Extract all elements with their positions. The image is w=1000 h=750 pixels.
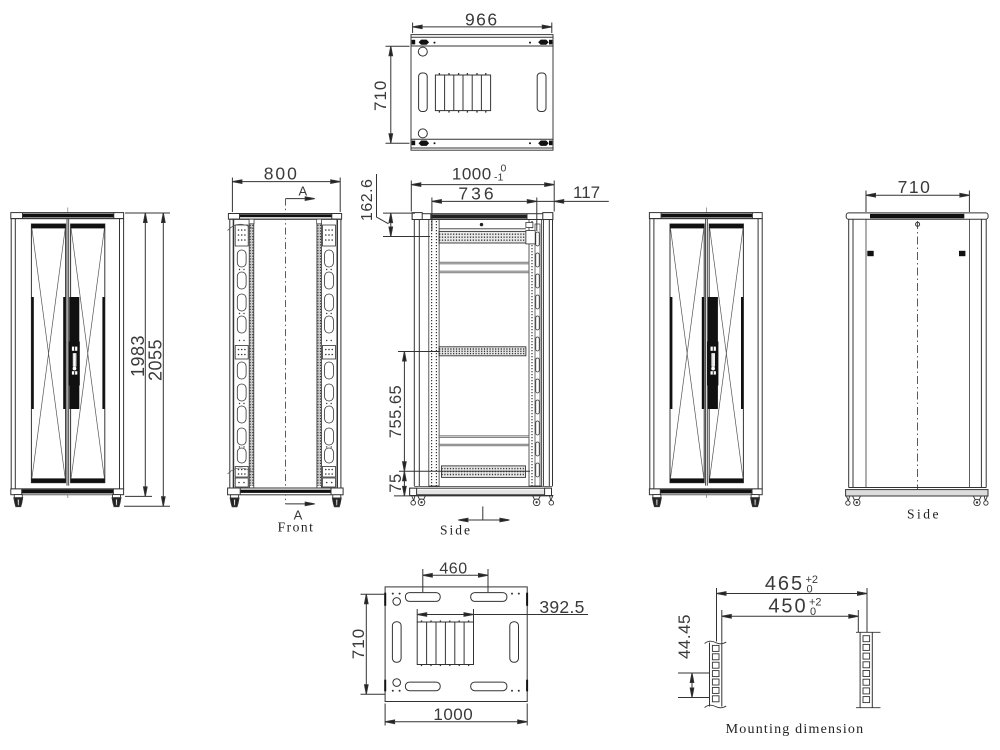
svg-text:75: 75 xyxy=(387,473,405,492)
svg-text:710: 710 xyxy=(898,177,932,197)
svg-text:1000: 1000 xyxy=(452,165,492,184)
svg-text:450: 450 xyxy=(768,596,807,618)
svg-text:392.5: 392.5 xyxy=(539,597,584,617)
svg-text:0: 0 xyxy=(807,584,813,596)
svg-text:1000: 1000 xyxy=(433,705,473,724)
svg-text:Side: Side xyxy=(907,507,941,522)
svg-text:A: A xyxy=(299,184,308,199)
svg-text:Mounting dimension: Mounting dimension xyxy=(726,722,865,737)
svg-text:736: 736 xyxy=(458,183,496,203)
svg-text:44.45: 44.45 xyxy=(675,614,694,659)
svg-text:-1: -1 xyxy=(494,172,503,184)
svg-text:2055: 2055 xyxy=(146,339,166,381)
svg-text:966: 966 xyxy=(465,10,499,30)
svg-text:Side: Side xyxy=(440,523,472,538)
svg-text:465: 465 xyxy=(765,573,804,595)
svg-text:710: 710 xyxy=(349,628,368,659)
svg-text:117: 117 xyxy=(573,183,600,202)
svg-text:Front: Front xyxy=(278,520,315,535)
svg-text:162.6: 162.6 xyxy=(359,179,376,222)
svg-text:755.65: 755.65 xyxy=(387,385,405,438)
svg-text:460: 460 xyxy=(439,561,467,578)
svg-text:710: 710 xyxy=(371,80,390,111)
svg-text:0: 0 xyxy=(810,606,816,618)
svg-text:800: 800 xyxy=(264,164,299,184)
